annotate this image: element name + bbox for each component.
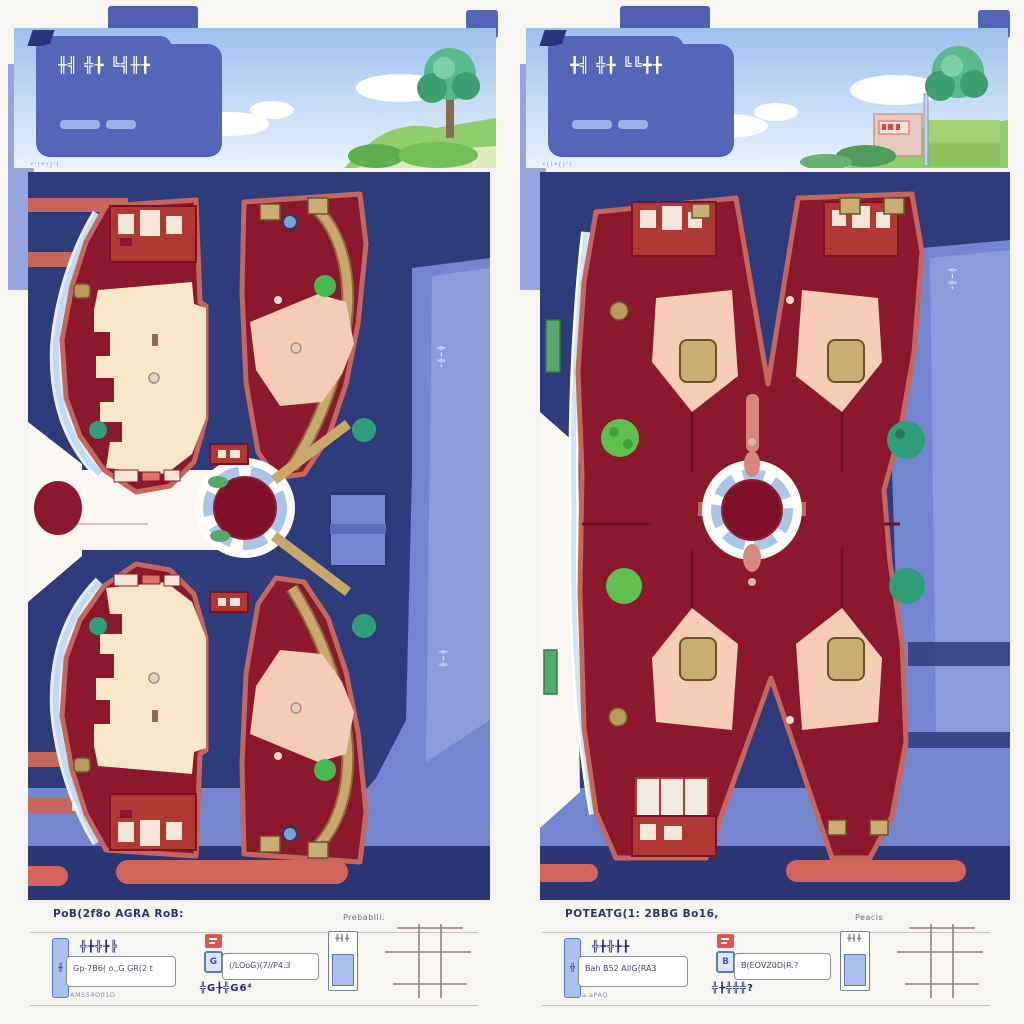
legend-block: POTEATG(1: 2BBG Bo16, Peacls ╬ ╬╊╬╊╊ Bah…: [542, 906, 994, 1010]
road-label: ╬╍╬╸: [948, 268, 955, 293]
tree: [889, 568, 925, 604]
map-illustration-right: [540, 172, 1010, 900]
corner-note: *'!*!)'!: [30, 161, 60, 169]
legend-swatch-box: ╬╣╬: [840, 931, 870, 991]
corner-note: *(!*()'!: [542, 161, 573, 169]
divider: [542, 1005, 990, 1006]
legend-heading-right: Prebablli.: [343, 913, 385, 922]
well: [610, 302, 628, 320]
legend-block: PoB(2f8o AGRA RoB: Prebablli. ╫ ╬╊╬╊╠ Gp…: [30, 906, 482, 1010]
table: [680, 340, 716, 382]
pole: [924, 94, 928, 166]
card-pill: [60, 120, 100, 129]
legend-item-title: ╬╊╬╊╊: [592, 940, 630, 953]
swatch-fill: [332, 954, 354, 986]
red-marker-icon: [205, 934, 222, 948]
legend-field: (/LOoG)(7//P4.3: [222, 953, 319, 980]
card-title: ╫╣ ╬╊ ╚╣╫╊: [58, 56, 151, 74]
legend-subtext: AM554O01D: [70, 991, 115, 999]
poster-comparison: ╫╣ ╬╊ ╚╣╫╊ *'!*!)'!: [0, 0, 1024, 1024]
swatch-fill: [844, 954, 866, 986]
white-rooms: [636, 778, 708, 816]
divider: [30, 1005, 478, 1006]
card-pill: [618, 120, 648, 129]
tree: [314, 275, 336, 297]
legend-item-title: ╬╊╬╊╠: [80, 940, 118, 953]
legend-swatch-box: ╬╣╬: [328, 931, 358, 991]
swatch-label: ╬╣╬: [841, 934, 869, 942]
map-illustration-left: [28, 172, 490, 900]
pond-marker: [34, 481, 82, 535]
legend-caption: ╬╊╬╬╬?: [712, 983, 754, 994]
lamp: [283, 215, 297, 229]
legend-heading: POTEATG(1: 2BBG Bo16,: [565, 908, 719, 920]
gold-pad: [692, 204, 710, 218]
panel-right: ╋╣ ╬╊ ╚╚╋╊ *(!*()'!: [518, 0, 1018, 1024]
swatch-label: ╬╣╬: [329, 934, 357, 942]
tree: [606, 568, 642, 604]
road-label: ╬╍╬╸: [437, 346, 444, 371]
legend-field: Gp-7B6( o.,G GR(2 t: [66, 956, 176, 987]
cloud: [754, 103, 798, 121]
tree: [887, 421, 925, 459]
cloud: [250, 101, 294, 119]
footer-bar: [786, 860, 966, 882]
bush: [89, 421, 107, 439]
card-title: ╋╣ ╬╊ ╚╚╋╊: [570, 56, 663, 74]
red-marker-icon: [717, 934, 734, 948]
legend-subtext: a.aPAQ: [582, 991, 608, 999]
statue: [744, 451, 760, 477]
card-pill: [106, 120, 136, 129]
blue-marker-icon: G: [204, 951, 223, 973]
legend-grid-table: [383, 922, 473, 1004]
card-pill: [572, 120, 612, 129]
legend-field: B(EOVZ0D(R.?: [734, 953, 831, 980]
tree: [352, 418, 376, 442]
road-label: ╬╍╬: [439, 650, 446, 669]
legend-field: Bah B52 AIIG(RA3: [578, 956, 688, 987]
gold-pad: [260, 204, 280, 220]
roundabout-center: [722, 480, 782, 540]
blue-marker-icon: B: [716, 951, 735, 973]
legend-grid-table: [895, 922, 985, 1004]
legend-heading: PoB(2f8o AGRA RoB:: [53, 908, 184, 920]
tree: [601, 419, 639, 457]
legend-caption: ╬G╊╬G6⁴: [200, 983, 253, 994]
footer-bar: [116, 860, 348, 884]
legend-heading-right: Peacls: [855, 913, 883, 922]
panel-left: ╫╣ ╬╊ ╚╣╫╊ *'!*!)'!: [6, 0, 506, 1024]
